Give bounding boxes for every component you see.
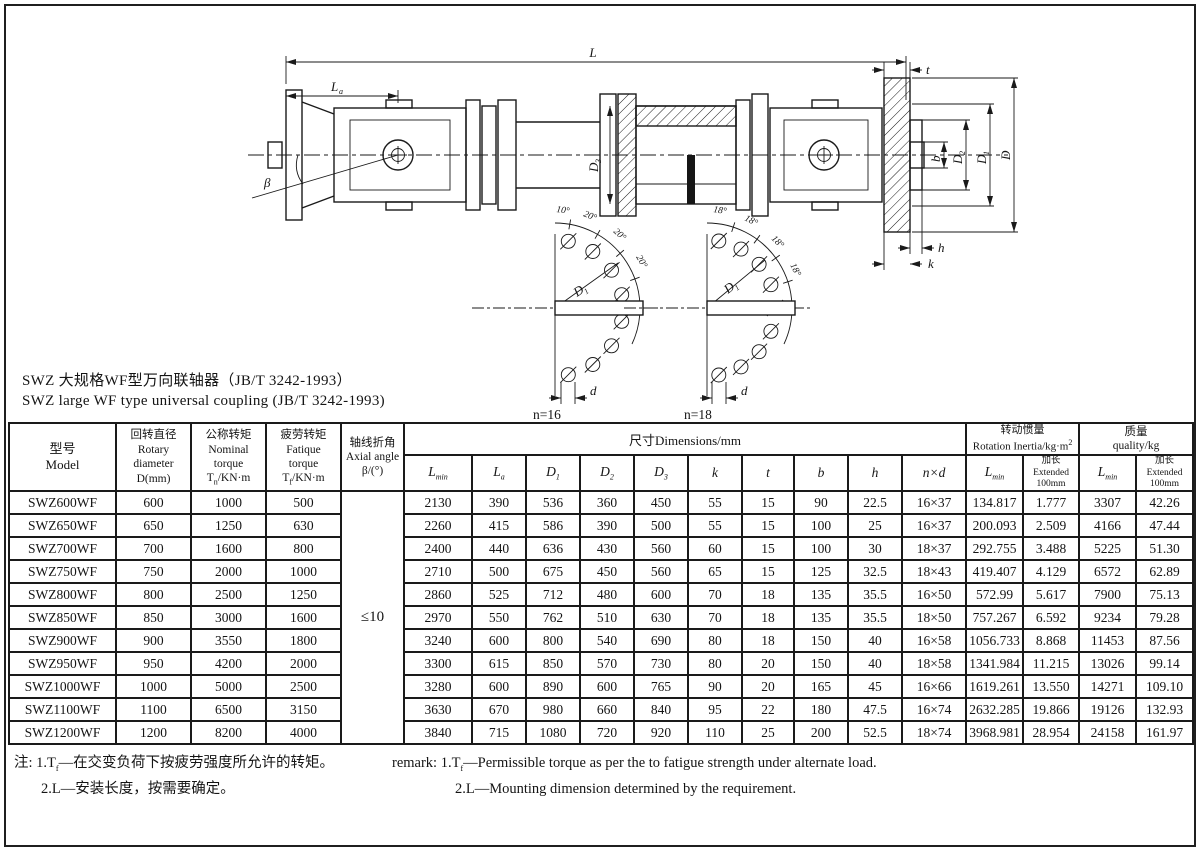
cell-mass-1: 62.89 [1136,560,1193,583]
cell-dim-1: 550 [472,606,526,629]
cell-mass-1: 42.26 [1136,491,1193,514]
cell-dim-7: 165 [794,675,848,698]
dim-label-h: h [938,240,945,255]
dim-label-beta: β [263,175,271,190]
table-row: SWZ700WF70016008002400440636430560601510… [9,537,1193,560]
cell-dim-5: 70 [688,606,742,629]
cell-mass-0: 5225 [1079,537,1136,560]
cell-dim-8: 45 [848,675,902,698]
cell-inertia-0: 2632.285 [966,698,1023,721]
cell-dim-0: 2260 [404,514,472,537]
cell-dim-7: 100 [794,537,848,560]
cell-dim-9: 16×37 [902,491,966,514]
cell-dim-5: 55 [688,514,742,537]
remarks: 注: 1.Tf—在交变负荷下按疲劳强度所允许的转矩。 2.L—安装长度，按需要确… [8,750,1192,810]
cell-dim-2: 636 [526,537,580,560]
cell-model: SWZ850WF [9,606,116,629]
cell-mass-0: 13026 [1079,652,1136,675]
table-row: SWZ900WF90035501800324060080054069080181… [9,629,1193,652]
cell-dim-6: 15 [742,514,794,537]
cell-dim-1: 525 [472,583,526,606]
cell-rotary-diameter: 1100 [116,698,191,721]
cell-model: SWZ1000WF [9,675,116,698]
header-mass-Lmin: Lmin [1079,455,1136,491]
cell-dim-5: 80 [688,629,742,652]
svg-text:D: D [998,150,1013,161]
cell-inertia-1: 11.215 [1023,652,1079,675]
cell-dim-5: 95 [688,698,742,721]
cell-dim-3: 360 [580,491,634,514]
cell-nominal-torque: 2500 [191,583,266,606]
cell-dim-2: 675 [526,560,580,583]
cell-inertia-1: 1.777 [1023,491,1079,514]
cell-mass-0: 4166 [1079,514,1136,537]
header-dim-nxd: n×d [902,455,966,491]
cell-dim-7: 135 [794,606,848,629]
cell-dim-1: 600 [472,675,526,698]
drawing-sheet: L L a β [0,0,1200,851]
cell-dim-4: 730 [634,652,688,675]
cell-rotary-diameter: 950 [116,652,191,675]
cell-mass-0: 11453 [1079,629,1136,652]
title-en: SWZ large WF type universal coupling (JB… [22,391,385,411]
svg-text:b: b [928,155,943,162]
cell-dim-6: 18 [742,606,794,629]
cell-dim-0: 2400 [404,537,472,560]
cell-inertia-1: 3.488 [1023,537,1079,560]
cell-rotary-diameter: 1200 [116,721,191,744]
cell-mass-1: 75.13 [1136,583,1193,606]
cell-dim-9: 16×58 [902,629,966,652]
cell-rotary-diameter: 1000 [116,675,191,698]
cell-dim-0: 2710 [404,560,472,583]
header-inertia-extended: 加长 Extended 100mm [1023,455,1079,491]
cell-nominal-torque: 8200 [191,721,266,744]
cell-dim-6: 15 [742,491,794,514]
cell-inertia-1: 4.129 [1023,560,1079,583]
cell-mass-1: 109.10 [1136,675,1193,698]
cell-dim-3: 540 [580,629,634,652]
cell-dim-3: 510 [580,606,634,629]
cell-dim-7: 100 [794,514,848,537]
cell-dim-1: 500 [472,560,526,583]
cell-inertia-1: 28.954 [1023,721,1079,744]
cell-rotary-diameter: 700 [116,537,191,560]
header-dim-D1: D1 [526,455,580,491]
cell-rotary-diameter: 750 [116,560,191,583]
cell-fatigue-torque: 1600 [266,606,341,629]
cell-model: SWZ900WF [9,629,116,652]
cell-dim-5: 70 [688,583,742,606]
cell-nominal-torque: 5000 [191,675,266,698]
cell-rotary-diameter: 600 [116,491,191,514]
cell-dim-3: 450 [580,560,634,583]
cell-dim-5: 110 [688,721,742,744]
cell-fatigue-torque: 2500 [266,675,341,698]
cell-inertia-0: 1619.261 [966,675,1023,698]
cell-dim-7: 150 [794,629,848,652]
dim-label-L: L [588,45,596,60]
cell-dim-5: 60 [688,537,742,560]
cell-dim-6: 25 [742,721,794,744]
dim-label-k: k [928,256,934,271]
cell-dim-4: 630 [634,606,688,629]
header-dim-h: h [848,455,902,491]
cell-dim-6: 15 [742,537,794,560]
header-inertia-Lmin: Lmin [966,455,1023,491]
header-axial-angle: 轴线折角 Axial angle β/(°) [341,423,404,491]
dim-label-t: t [926,62,930,77]
cell-dim-8: 47.5 [848,698,902,721]
table-row: SWZ650WF65012506302260415586390500551510… [9,514,1193,537]
header-inertia-group: 转动惯量 Rotation Inertia/kg·m2 [966,423,1079,455]
dim-label-b: b [928,155,943,162]
dim-label-La-sub: a [339,87,343,96]
header-dim-La: La [472,455,526,491]
cell-dim-2: 536 [526,491,580,514]
cell-fatigue-torque: 500 [266,491,341,514]
svg-text:1: 1 [982,151,991,155]
cell-dim-9: 18×74 [902,721,966,744]
cell-dim-8: 30 [848,537,902,560]
cell-mass-1: 47.44 [1136,514,1193,537]
cell-dim-0: 2860 [404,583,472,606]
bolt-circle-detail-right: D 1 18° 18° 18° 18° d n=18 [624,204,812,422]
cell-inertia-0: 200.093 [966,514,1023,537]
cell-nominal-torque: 1250 [191,514,266,537]
cell-inertia-0: 572.99 [966,583,1023,606]
cell-fatigue-torque: 1800 [266,629,341,652]
angle-label: 18° [743,213,760,229]
table-row: SWZ1000WF1000500025003280600890600765902… [9,675,1193,698]
cell-dim-1: 670 [472,698,526,721]
cell-dim-3: 390 [580,514,634,537]
cell-dim-9: 18×58 [902,652,966,675]
cell-dim-7: 125 [794,560,848,583]
remark-zh: 注: 1.Tf—在交变负荷下按疲劳强度所允许的转矩。 2.L—安装长度，按需要确… [14,753,334,800]
cell-mass-0: 6572 [1079,560,1136,583]
cell-inertia-1: 5.617 [1023,583,1079,606]
header-dimensions-group: 尺寸Dimensions/mm [404,423,966,455]
svg-text:3: 3 [594,159,603,164]
cell-dim-8: 22.5 [848,491,902,514]
cell-dim-3: 660 [580,698,634,721]
cell-mass-0: 3307 [1079,491,1136,514]
cell-dim-0: 3280 [404,675,472,698]
cell-rotary-diameter: 650 [116,514,191,537]
header-dim-b: b [794,455,848,491]
cell-model: SWZ750WF [9,560,116,583]
cell-dim-0: 3240 [404,629,472,652]
cell-dim-9: 16×74 [902,698,966,721]
cell-mass-1: 51.30 [1136,537,1193,560]
cell-dim-4: 450 [634,491,688,514]
cell-dim-4: 600 [634,583,688,606]
cell-nominal-torque: 1600 [191,537,266,560]
cell-inertia-0: 3968.981 [966,721,1023,744]
cell-rotary-diameter: 900 [116,629,191,652]
dim-label-D: D [998,150,1013,161]
cell-dim-2: 800 [526,629,580,652]
cell-nominal-torque: 6500 [191,698,266,721]
header-nominal-torque: 公称转矩 Nominal torque Tn/KN·m [191,423,266,491]
hole-count-right: n=18 [684,407,712,422]
table-row: SWZ1100WF1100650031503630670980660840952… [9,698,1193,721]
cell-dim-1: 415 [472,514,526,537]
dim-label-D1-flange: D 1 [974,151,991,165]
cell-dim-4: 560 [634,537,688,560]
cell-dim-3: 600 [580,675,634,698]
cell-mass-1: 79.28 [1136,606,1193,629]
angle-label: 20° [633,253,649,270]
dim-label-La: L [330,79,338,94]
header-mass-group: 质量 quality/kg [1079,423,1193,455]
cell-dim-2: 586 [526,514,580,537]
cell-dim-2: 712 [526,583,580,606]
cell-inertia-0: 757.267 [966,606,1023,629]
cell-dim-9: 16×37 [902,514,966,537]
cell-model: SWZ600WF [9,491,116,514]
dim-label-D3-tube: D 3 [586,159,603,173]
coupling-spec-table: 型号 Model 回转直径 Rotary diameter D(mm) 公称转矩… [8,422,1194,745]
cell-dim-4: 765 [634,675,688,698]
cell-dim-9: 16×66 [902,675,966,698]
cell-dim-2: 850 [526,652,580,675]
cell-fatigue-torque: 630 [266,514,341,537]
angle-label: 18° [787,261,803,278]
coupling-assembly-drawing: L L a β [0,0,1200,425]
cell-dim-0: 3300 [404,652,472,675]
cell-nominal-torque: 4200 [191,652,266,675]
cell-dim-9: 16×50 [902,583,966,606]
table-row: SWZ600WF6001000500≤102130390536360450551… [9,491,1193,514]
cell-dim-0: 2970 [404,606,472,629]
cell-dim-0: 2130 [404,491,472,514]
cell-inertia-0: 1341.984 [966,652,1023,675]
table-row: SWZ800WF80025001250286052571248060070181… [9,583,1193,606]
cell-inertia-1: 13.550 [1023,675,1079,698]
cell-model: SWZ950WF [9,652,116,675]
header-dim-k: k [688,455,742,491]
cell-model: SWZ700WF [9,537,116,560]
cell-mass-0: 9234 [1079,606,1136,629]
table-row: SWZ950WF95042002000330061585057073080201… [9,652,1193,675]
svg-text:2: 2 [958,151,967,155]
cell-dim-1: 390 [472,491,526,514]
cell-dim-6: 18 [742,583,794,606]
cell-fatigue-torque: 1000 [266,560,341,583]
cell-model: SWZ650WF [9,514,116,537]
header-dim-Lmin: Lmin [404,455,472,491]
cell-dim-5: 65 [688,560,742,583]
cell-rotary-diameter: 850 [116,606,191,629]
cell-dim-8: 35.5 [848,606,902,629]
drawing-title: SWZ 大规格WF型万向联轴器（JB/T 3242-1993） SWZ larg… [22,371,385,411]
header-dim-D3: D3 [634,455,688,491]
table-row: SWZ850WF85030001600297055076251063070181… [9,606,1193,629]
cell-dim-1: 615 [472,652,526,675]
cell-axial-angle: ≤10 [341,491,404,744]
header-rotary-diameter: 回转直径 Rotary diameter D(mm) [116,423,191,491]
header-fatigue-torque: 疲劳转矩 Fatique torque Tf/KN·m [266,423,341,491]
header-dim-t: t [742,455,794,491]
cell-dim-6: 15 [742,560,794,583]
angle-label: 18° [713,204,728,217]
dim-label-D1-left-view: D 1 [569,280,590,302]
cell-fatigue-torque: 2000 [266,652,341,675]
cell-dim-6: 20 [742,675,794,698]
cell-mass-1: 99.14 [1136,652,1193,675]
cell-dim-4: 920 [634,721,688,744]
cell-dim-7: 150 [794,652,848,675]
cell-dim-1: 715 [472,721,526,744]
cell-dim-6: 18 [742,629,794,652]
title-zh: SWZ 大规格WF型万向联轴器（JB/T 3242-1993） [22,371,385,391]
cell-inertia-1: 19.866 [1023,698,1079,721]
cell-inertia-0: 292.755 [966,537,1023,560]
cell-dim-9: 18×37 [902,537,966,560]
cell-dim-8: 25 [848,514,902,537]
cell-dim-8: 52.5 [848,721,902,744]
cell-nominal-torque: 3000 [191,606,266,629]
cell-dim-3: 430 [580,537,634,560]
cell-dim-9: 18×50 [902,606,966,629]
cell-dim-6: 22 [742,698,794,721]
cell-rotary-diameter: 800 [116,583,191,606]
cell-mass-0: 14271 [1079,675,1136,698]
cell-model: SWZ1200WF [9,721,116,744]
angle-label: 18° [769,233,786,250]
cell-dim-9: 18×43 [902,560,966,583]
cell-dim-0: 3840 [404,721,472,744]
cell-fatigue-torque: 4000 [266,721,341,744]
cell-dim-7: 180 [794,698,848,721]
cell-dim-2: 980 [526,698,580,721]
cell-fatigue-torque: 800 [266,537,341,560]
dim-label-d-right: d [741,383,748,398]
cell-dim-4: 500 [634,514,688,537]
cell-inertia-1: 6.592 [1023,606,1079,629]
cell-mass-1: 87.56 [1136,629,1193,652]
cell-dim-1: 600 [472,629,526,652]
cell-mass-0: 24158 [1079,721,1136,744]
cell-dim-7: 90 [794,491,848,514]
cell-dim-6: 20 [742,652,794,675]
cell-model: SWZ1100WF [9,698,116,721]
cell-dim-2: 890 [526,675,580,698]
header-dim-D2: D2 [580,455,634,491]
cell-mass-0: 19126 [1079,698,1136,721]
cell-dim-8: 35.5 [848,583,902,606]
cell-dim-3: 720 [580,721,634,744]
angle-label: 10° [556,204,571,217]
header-mass-extended: 加长 Extended 100mm [1136,455,1193,491]
header-model: 型号 Model [9,423,116,491]
cell-mass-1: 161.97 [1136,721,1193,744]
cell-dim-3: 480 [580,583,634,606]
cell-mass-1: 132.93 [1136,698,1193,721]
dim-label-d-left: d [590,383,597,398]
cell-dim-4: 840 [634,698,688,721]
cell-nominal-torque: 3550 [191,629,266,652]
cell-dim-7: 135 [794,583,848,606]
cell-dim-4: 560 [634,560,688,583]
cell-dim-8: 40 [848,629,902,652]
cell-dim-2: 762 [526,606,580,629]
cell-dim-5: 55 [688,491,742,514]
cell-dim-4: 690 [634,629,688,652]
angle-label: 20° [582,209,599,224]
cell-inertia-1: 2.509 [1023,514,1079,537]
cell-dim-7: 200 [794,721,848,744]
angle-label: 20° [611,226,628,243]
cell-dim-8: 40 [848,652,902,675]
table-row: SWZ750WF75020001000271050067545056065151… [9,560,1193,583]
cell-mass-0: 7900 [1079,583,1136,606]
cell-inertia-1: 8.868 [1023,629,1079,652]
remark-en: remark: 1.Tf—Permissible torque as per t… [392,753,877,800]
cell-nominal-torque: 1000 [191,491,266,514]
table-row: SWZ1200WF1200820040003840715108072092011… [9,721,1193,744]
cell-inertia-0: 419.407 [966,560,1023,583]
cell-model: SWZ800WF [9,583,116,606]
cell-inertia-0: 1056.733 [966,629,1023,652]
dim-label-D2: D 2 [950,151,967,165]
cell-dim-1: 440 [472,537,526,560]
cell-dim-8: 32.5 [848,560,902,583]
cell-nominal-torque: 2000 [191,560,266,583]
hole-count-left: n=16 [533,407,561,422]
cell-dim-2: 1080 [526,721,580,744]
cell-dim-5: 80 [688,652,742,675]
cell-inertia-0: 134.817 [966,491,1023,514]
cell-fatigue-torque: 3150 [266,698,341,721]
bolt-circle-detail-left: D 1 10° 20° 20° 20° d n=16 [472,204,660,422]
cell-dim-3: 570 [580,652,634,675]
table-body: SWZ600WF6001000500≤102130390536360450551… [9,491,1193,744]
cell-dim-0: 3630 [404,698,472,721]
cell-dim-5: 90 [688,675,742,698]
cell-fatigue-torque: 1250 [266,583,341,606]
